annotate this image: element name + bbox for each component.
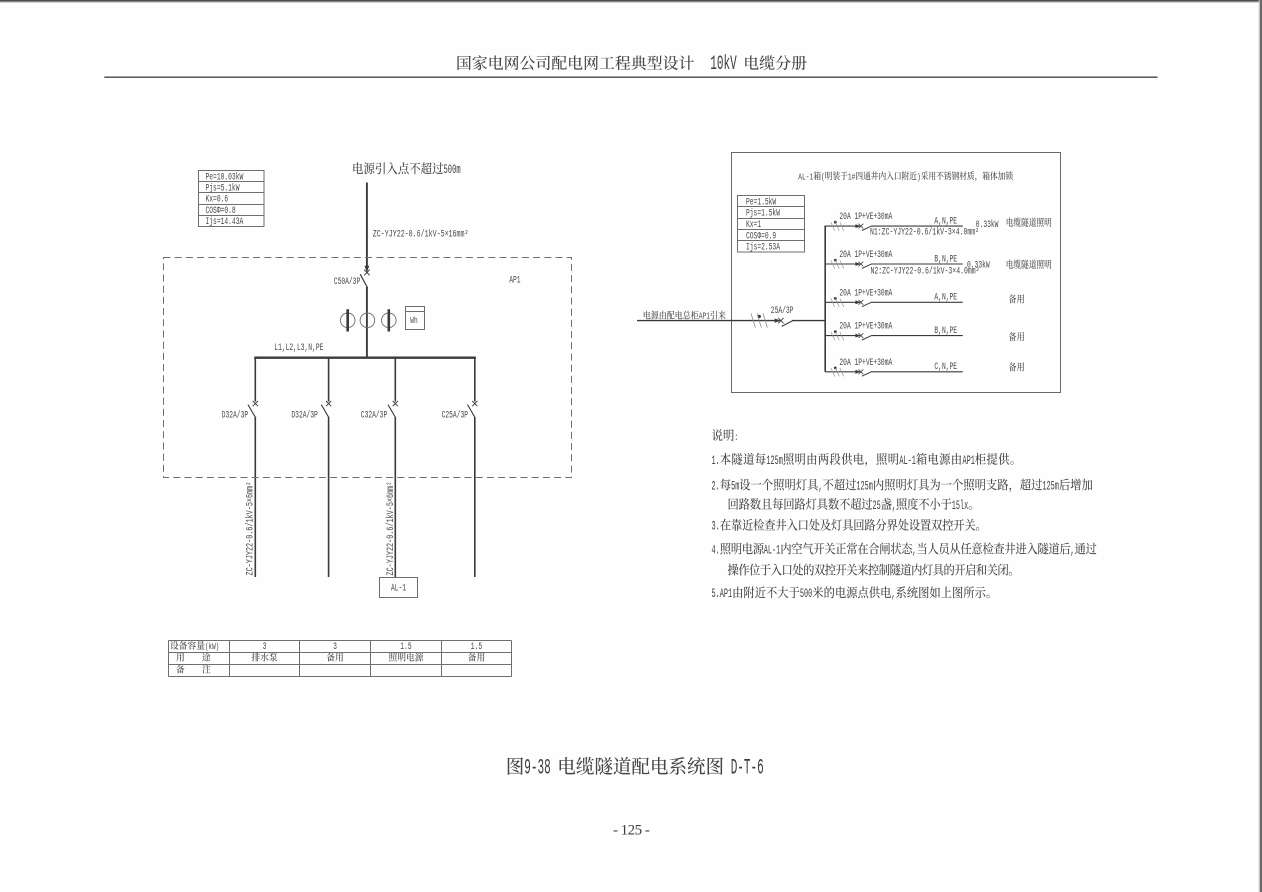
svg-text:2.: 2. bbox=[712, 481, 720, 495]
svg-text:C50A/3P: C50A/3P bbox=[334, 276, 360, 288]
svg-text:1#: 1# bbox=[848, 172, 856, 183]
svg-text:ZC-YJY22-0.6/1kV-5×16mm²: ZC-YJY22-0.6/1kV-5×16mm² bbox=[373, 228, 469, 240]
svg-text:3: 3 bbox=[263, 641, 267, 653]
svg-text:1.5: 1.5 bbox=[471, 641, 482, 653]
svg-text:15lx: 15lx bbox=[952, 499, 968, 514]
svg-text:(kW): (kW) bbox=[205, 643, 219, 652]
svg-text:3.: 3. bbox=[712, 521, 720, 535]
svg-text:ZC-YJY22-0.6/1kV-5×6mm²: ZC-YJY22-0.6/1kV-5×6mm² bbox=[385, 482, 397, 576]
svg-text:3: 3 bbox=[333, 641, 337, 653]
svg-text:Ijs=2.53A: Ijs=2.53A bbox=[746, 241, 780, 253]
svg-text:AL-1: AL-1 bbox=[764, 545, 780, 559]
svg-text:Ijs=14.43A: Ijs=14.43A bbox=[206, 216, 244, 228]
svg-text:Kx=0.6: Kx=0.6 bbox=[206, 193, 229, 205]
svg-text:5m: 5m bbox=[731, 481, 739, 495]
svg-text:125m: 125m bbox=[856, 481, 872, 495]
svg-text:L1,L2,L3,N,PE: L1,L2,L3,N,PE bbox=[274, 342, 323, 354]
svg-text:C,N,PE: C,N,PE bbox=[934, 361, 957, 373]
svg-text:Wh: Wh bbox=[410, 317, 417, 326]
svg-text:A,N,PE: A,N,PE bbox=[934, 291, 957, 303]
svg-text:0.33kW: 0.33kW bbox=[967, 259, 990, 271]
svg-text:5.AP1: 5.AP1 bbox=[712, 589, 733, 603]
svg-text::: : bbox=[734, 432, 738, 444]
svg-text:,: , bbox=[912, 545, 916, 559]
svg-text:1.: 1. bbox=[712, 455, 720, 469]
svg-text:20A 1P+VE+30mA: 20A 1P+VE+30mA bbox=[839, 287, 892, 299]
svg-text:20A 1P+VE+30mA: 20A 1P+VE+30mA bbox=[839, 320, 892, 332]
svg-text:ZC-YJY22-0.6/1kV-5×6mm²: ZC-YJY22-0.6/1kV-5×6mm² bbox=[244, 482, 256, 576]
svg-text:B,N,PE: B,N,PE bbox=[934, 325, 957, 337]
svg-text:125m: 125m bbox=[1042, 481, 1058, 495]
svg-text:AL-1: AL-1 bbox=[798, 172, 813, 183]
svg-text:500m: 500m bbox=[444, 163, 461, 178]
svg-text:D32A/3P: D32A/3P bbox=[291, 409, 317, 421]
svg-text:Pe=1.5kW: Pe=1.5kW bbox=[746, 196, 776, 208]
svg-text:25A/3P: 25A/3P bbox=[771, 305, 794, 317]
svg-text:AL-1: AL-1 bbox=[391, 582, 406, 594]
svg-text:Pe=10.03kW: Pe=10.03kW bbox=[206, 171, 244, 183]
svg-text:N1:ZC-YJY22-0.6/1kV-3×4.0mm²: N1:ZC-YJY22-0.6/1kV-3×4.0mm² bbox=[870, 226, 979, 238]
svg-text:C32A/3P: C32A/3P bbox=[361, 409, 387, 421]
svg-text:10kV: 10kV bbox=[710, 53, 737, 75]
svg-text:,: , bbox=[1070, 545, 1074, 559]
svg-text:B,N,PE: B,N,PE bbox=[934, 253, 957, 265]
svg-text:500: 500 bbox=[800, 589, 812, 603]
svg-text:Kx=1: Kx=1 bbox=[746, 219, 761, 231]
svg-text:Pjs=1.5kW: Pjs=1.5kW bbox=[746, 207, 780, 219]
svg-text:0.33kW: 0.33kW bbox=[976, 219, 999, 231]
svg-text:A,N,PE: A,N,PE bbox=[934, 215, 957, 227]
svg-text:1.5: 1.5 bbox=[400, 641, 411, 653]
svg-text:COSΦ=0.9: COSΦ=0.9 bbox=[746, 230, 776, 242]
svg-text:AL-1: AL-1 bbox=[899, 455, 915, 469]
svg-text:- 125 -: - 125 - bbox=[613, 822, 650, 838]
svg-text:D-T-6: D-T-6 bbox=[731, 757, 764, 781]
svg-text:AP1: AP1 bbox=[509, 274, 520, 286]
svg-text:20A 1P+VE+30mA: 20A 1P+VE+30mA bbox=[839, 249, 892, 261]
svg-text:COSΦ=0.8: COSΦ=0.8 bbox=[206, 205, 236, 217]
svg-text:,: , bbox=[892, 500, 896, 514]
svg-text:,: , bbox=[818, 481, 822, 495]
svg-text:20A 1P+VE+30mA: 20A 1P+VE+30mA bbox=[839, 356, 892, 368]
svg-text:Pjs=5.1kW: Pjs=5.1kW bbox=[206, 182, 240, 194]
svg-text:125m: 125m bbox=[766, 455, 782, 469]
svg-text:9-38: 9-38 bbox=[524, 757, 550, 781]
svg-text:4.: 4. bbox=[712, 545, 720, 559]
svg-text:): ) bbox=[917, 172, 921, 183]
svg-text:N2:ZC-YJY22-0.6/1kV-3×4.0mm²: N2:ZC-YJY22-0.6/1kV-3×4.0mm² bbox=[871, 265, 980, 277]
svg-text:,: , bbox=[891, 589, 895, 603]
svg-text:C25A/3P: C25A/3P bbox=[442, 409, 468, 421]
svg-text:(: ( bbox=[821, 172, 825, 183]
svg-text:AP1: AP1 bbox=[963, 455, 975, 469]
svg-text:D32A/3P: D32A/3P bbox=[222, 409, 248, 421]
svg-text:25: 25 bbox=[873, 500, 881, 514]
svg-text:20A 1P+VE+30mA: 20A 1P+VE+30mA bbox=[839, 211, 892, 223]
